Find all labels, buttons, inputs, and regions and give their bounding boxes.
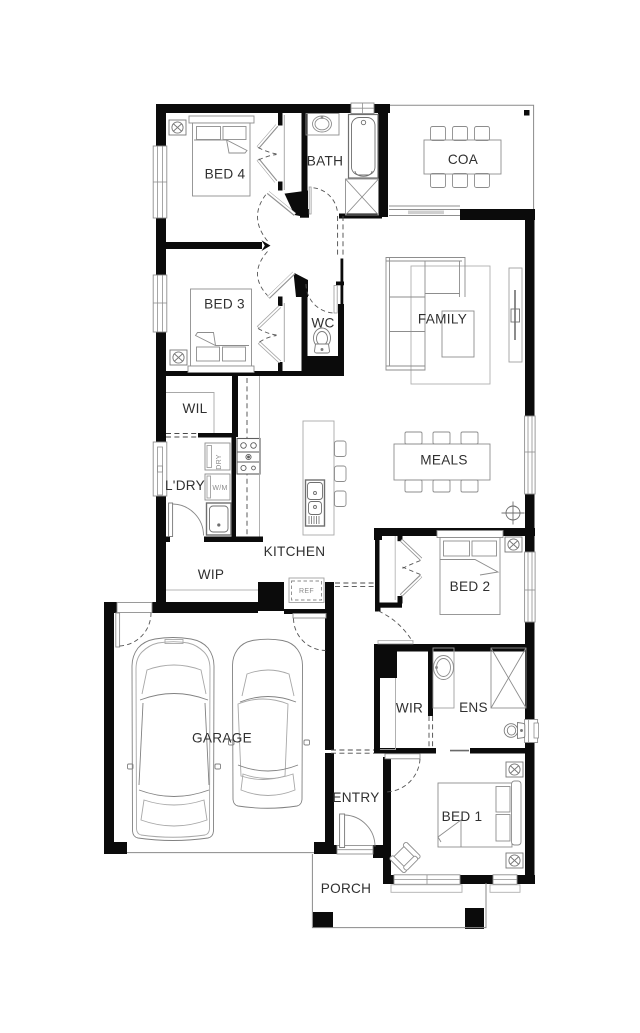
svg-text:PORCH: PORCH: [321, 881, 372, 896]
svg-text:WC: WC: [311, 316, 334, 331]
svg-text:REF: REF: [299, 588, 314, 595]
svg-text:BATH: BATH: [307, 154, 343, 169]
svg-text:WIP: WIP: [198, 567, 225, 582]
svg-text:L'DRY: L'DRY: [165, 478, 205, 493]
svg-text:ENS: ENS: [459, 700, 488, 715]
svg-text:WIR: WIR: [396, 701, 423, 716]
svg-text:BED 3: BED 3: [204, 297, 245, 312]
svg-text:BED 1: BED 1: [442, 809, 483, 824]
svg-text:BED 4: BED 4: [205, 166, 246, 181]
svg-text:ENTRY: ENTRY: [332, 790, 379, 805]
svg-text:BED 2: BED 2: [450, 579, 491, 594]
svg-text:DRY: DRY: [216, 454, 223, 470]
svg-text:COA: COA: [448, 152, 479, 167]
svg-text:GARAGE: GARAGE: [192, 730, 252, 745]
svg-text:FAMILY: FAMILY: [418, 311, 467, 326]
svg-text:MEALS: MEALS: [420, 453, 468, 468]
svg-text:WIL: WIL: [182, 401, 207, 416]
svg-text:W/M: W/M: [212, 485, 227, 492]
svg-text:KITCHEN: KITCHEN: [264, 544, 326, 559]
